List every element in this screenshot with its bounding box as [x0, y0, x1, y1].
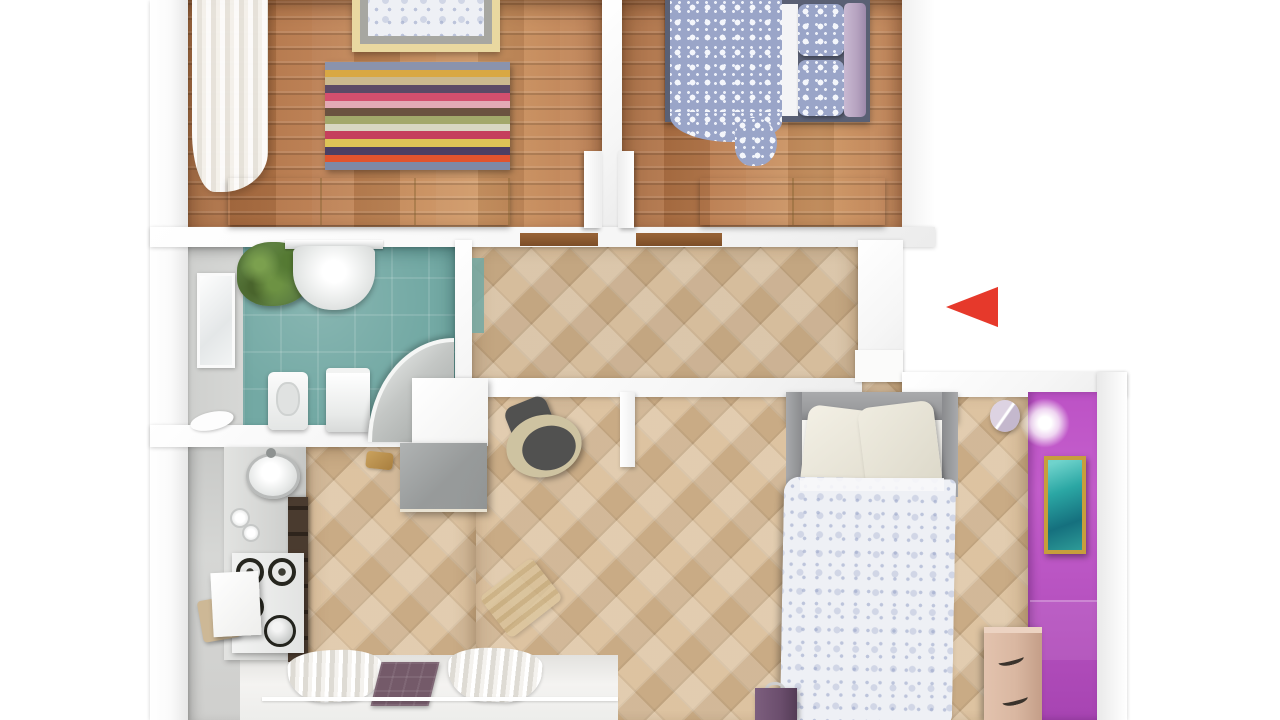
rug-stripe	[325, 77, 510, 85]
dresser-handle	[1001, 692, 1029, 708]
cutting-board	[365, 451, 394, 471]
bathroom-window	[197, 273, 235, 368]
wall-sconce	[990, 400, 1020, 432]
bed-right-bolster	[844, 3, 866, 117]
rug-stripe	[325, 147, 510, 155]
wardrobe-upper	[412, 378, 488, 446]
previous-arrow-icon[interactable]	[946, 286, 998, 328]
wall-hallway-step	[855, 350, 903, 382]
bathroom-door-opening	[472, 258, 484, 333]
curtain	[192, 0, 268, 192]
rug-stripe	[325, 131, 510, 139]
wall-light-glow	[1020, 398, 1070, 448]
bed-left-duvet	[368, 0, 484, 36]
rug-stripe	[325, 85, 510, 93]
hallway-floor	[472, 240, 858, 380]
window-ledge	[262, 697, 618, 701]
striped-rug	[325, 62, 510, 170]
dresser-handle	[997, 652, 1025, 668]
rug-stripe	[325, 116, 510, 124]
floor-plan-canvas	[0, 0, 1280, 720]
door-threshold-bedroom-left	[520, 233, 598, 246]
plates	[242, 524, 260, 542]
rug-stripe	[325, 124, 510, 132]
toilet-bowl	[276, 382, 300, 416]
kitchen-faucet	[266, 448, 276, 458]
rug-stripe	[325, 108, 510, 116]
wall-right-outer	[1097, 372, 1127, 720]
bed-right-pillow	[798, 60, 844, 116]
rug-stripe	[325, 155, 510, 163]
bed-main-duvet	[780, 477, 956, 720]
wardrobe	[400, 443, 487, 512]
rug-stripe	[325, 101, 510, 109]
washing-machine	[326, 368, 370, 432]
bed-right-duvet-tail	[735, 118, 777, 166]
rug-stripe	[325, 139, 510, 147]
kitchen-table	[210, 571, 261, 637]
stove-burner	[268, 558, 296, 586]
pot	[264, 615, 296, 647]
kitchen-sink	[246, 453, 300, 499]
bench-bedroom-left	[228, 178, 510, 225]
bed-right-sheet	[782, 4, 798, 116]
purple-stool	[755, 688, 797, 720]
wall-door-stub	[620, 392, 635, 467]
wall-left-outer	[150, 0, 188, 720]
door-threshold-bedroom-right	[636, 233, 722, 246]
rug-stripe	[325, 62, 510, 70]
wall-top-right-outer	[902, 0, 935, 247]
door-leaf-bedroom-left	[584, 151, 602, 228]
bed-main-sheet-fold	[800, 478, 944, 491]
bench-bedroom-right	[700, 178, 885, 225]
wall-painting	[1044, 456, 1086, 554]
bed-right-duvet	[670, 0, 782, 116]
door-leaf-bedroom-right	[618, 151, 634, 228]
rug-stripe	[325, 93, 510, 101]
rug-stripe	[325, 162, 510, 170]
dresser	[984, 627, 1042, 720]
rug-stripe	[325, 70, 510, 78]
bed-right-pillow	[798, 4, 844, 56]
